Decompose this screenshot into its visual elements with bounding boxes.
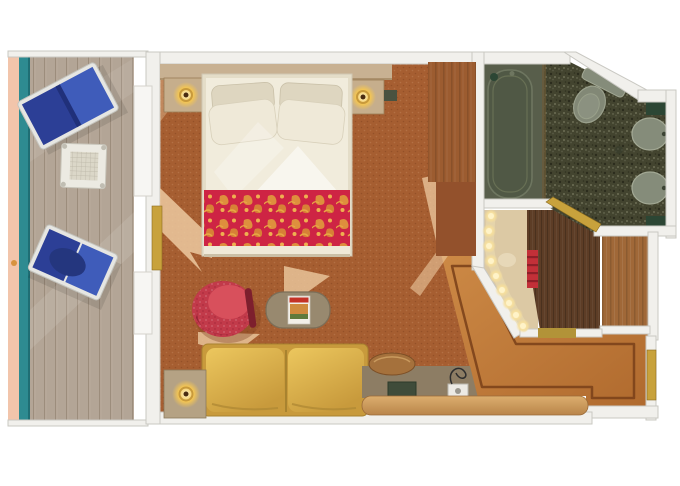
pillow-front-right <box>276 99 346 146</box>
balcony-door <box>152 206 162 270</box>
sofa <box>202 344 368 416</box>
threshold-wall-right <box>574 329 602 337</box>
floor-drain <box>615 146 623 154</box>
balcony-top-wall <box>8 51 148 57</box>
sofa-cushion-left <box>206 348 284 412</box>
bed-foot-frame <box>204 254 350 257</box>
nightstand-item <box>384 90 397 101</box>
bathroom-right-wall <box>666 90 676 238</box>
closet-right-wall <box>648 232 658 340</box>
closet-floor <box>602 234 648 330</box>
bed-foot-sheet <box>204 246 350 255</box>
counter-shelf-top <box>646 102 667 115</box>
life-jackets <box>527 250 538 288</box>
side-table <box>164 370 206 418</box>
balcony-bottom-wall <box>8 420 148 426</box>
bathtub-drain <box>510 71 515 76</box>
bathroom-bottom-right-wall <box>594 226 676 236</box>
wardrobe-upper <box>428 62 476 182</box>
bed-blanket <box>204 190 350 246</box>
shelf-counter <box>362 396 588 415</box>
corridor-threshold <box>538 328 576 338</box>
magazine-title <box>290 298 309 303</box>
hairdryer <box>455 388 461 394</box>
bathtub-faucet <box>490 73 498 81</box>
closet-bottom-sill <box>600 326 650 334</box>
bathroom-bottom-left-wall <box>478 199 552 208</box>
floorplan-image <box>0 0 680 486</box>
cabin-top-wall <box>146 52 570 64</box>
vanity-basin <box>498 253 516 267</box>
balcony-window-upper <box>134 86 152 196</box>
nightstand-left <box>164 78 206 112</box>
ship-hull-stripe <box>8 54 20 424</box>
life-jacket-stack <box>527 250 538 288</box>
magazine-photo-greens <box>290 314 308 319</box>
coffee-table <box>266 292 330 328</box>
chair-seat-cushion <box>208 285 250 319</box>
bed <box>202 74 352 257</box>
cabin-entry-door <box>647 350 656 400</box>
magazine <box>288 296 310 324</box>
wardrobe-lower <box>436 182 476 256</box>
bathtub <box>488 70 532 198</box>
entry-bottom-wall <box>584 406 658 418</box>
sofa-cushion-right <box>288 348 364 412</box>
balcony-table <box>60 143 107 189</box>
balcony-window-lower <box>134 272 152 334</box>
tub-alcove-trim <box>542 64 546 204</box>
table-mesh <box>70 152 99 181</box>
lamp-finial <box>184 93 189 98</box>
lamp-finial <box>184 392 189 397</box>
hull-light-dot <box>11 260 17 266</box>
lamp-finial <box>361 95 366 100</box>
